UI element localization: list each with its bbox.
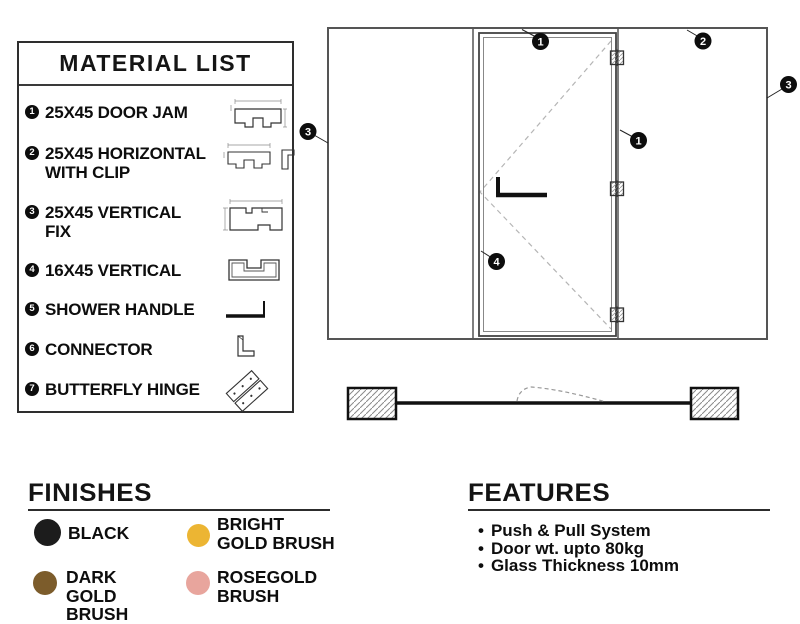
svg-text:3: 3	[785, 79, 791, 91]
swatch-label: BRIGHT GOLD BRUSH	[217, 515, 335, 552]
spec-sheet-page: { "material_list": { "title": "MATERIAL …	[0, 0, 800, 600]
callout-1-jamb: 1	[630, 132, 647, 149]
svg-text:4: 4	[493, 256, 500, 268]
item-number-badge: 4	[25, 263, 39, 277]
material-list-panel: MATERIAL LIST 1 25X45 DOOR JAM 2 25X45 H…	[17, 41, 294, 413]
material-item-label: BUTTERFLY HINGE	[45, 380, 210, 399]
features-underline	[468, 509, 770, 511]
horizontal-clip-profile-icon	[220, 142, 298, 181]
callout-leaders	[314, 30, 782, 259]
feature-item: Door wt. upto 80kg	[478, 540, 679, 558]
swatch-label: ROSEGOLD BRUSH	[217, 568, 322, 605]
material-item-label: 25X45 DOOR JAM	[45, 103, 210, 122]
door-leaf-inner	[484, 38, 612, 332]
vertical-16x45-profile-icon	[223, 254, 285, 291]
rosegold-swatch-icon	[186, 571, 210, 595]
features-list: Push & Pull System Door wt. upto 80kg Gl…	[478, 522, 679, 575]
hinge-middle	[611, 181, 624, 198]
svg-text:1: 1	[537, 36, 543, 48]
vertical-fix-profile-icon	[222, 198, 292, 247]
plan-left-wall	[348, 388, 396, 419]
finishes-underline	[28, 509, 330, 511]
outer-frame	[328, 28, 767, 339]
plan-view	[348, 387, 738, 419]
feature-item: Glass Thickness 10mm	[478, 557, 679, 575]
material-item-label: 16X45 VERTICAL	[45, 261, 210, 280]
material-item-label: 25X45 VERTICAL FIX	[45, 203, 210, 241]
item-number-badge: 3	[25, 205, 39, 219]
item-number-badge: 5	[25, 302, 39, 316]
material-item-label: CONNECTOR	[45, 340, 210, 359]
hinge-bottom	[611, 307, 624, 324]
features-title: FEATURES	[468, 478, 610, 508]
item-number-badge: 2	[25, 146, 39, 160]
item-number-badge: 6	[25, 342, 39, 356]
connector-bracket-icon	[226, 332, 258, 369]
hinge-top	[611, 50, 624, 67]
feature-item: Push & Pull System	[478, 522, 679, 540]
swatch-label: DARK GOLD BRUSH	[66, 568, 171, 624]
butterfly-hinge-icon	[222, 368, 272, 419]
item-number-badge: 1	[25, 105, 39, 119]
shower-handle-icon	[222, 296, 272, 327]
svg-text:1: 1	[635, 135, 641, 147]
swatch-label: BLACK	[68, 524, 168, 543]
door-elevation-diagram: 1 2 3 3 1 4	[298, 18, 800, 440]
svg-text:2: 2	[700, 36, 706, 48]
material-item-label: 25X45 HORIZONTAL WITH CLIP	[45, 144, 210, 182]
black-swatch-icon	[34, 519, 61, 546]
plan-door-swing-dash	[517, 387, 606, 402]
plan-right-wall	[691, 388, 738, 419]
callout-2-top-right: 2	[695, 33, 712, 50]
dark-gold-swatch-icon	[33, 571, 57, 595]
door-handle	[496, 177, 547, 195]
item-number-badge: 7	[25, 382, 39, 396]
callout-1-top: 1	[532, 33, 549, 50]
callout-3-left: 3	[300, 123, 317, 140]
svg-text:3: 3	[305, 126, 311, 138]
callout-4-leaf: 4	[488, 253, 505, 270]
door-jam-profile-icon	[225, 97, 287, 138]
material-list-title: MATERIAL LIST	[19, 43, 292, 86]
material-item-label: SHOWER HANDLE	[45, 300, 210, 319]
callout-3-right: 3	[780, 76, 797, 93]
bright-gold-swatch-icon	[187, 524, 210, 547]
finishes-title: FINISHES	[28, 478, 152, 508]
